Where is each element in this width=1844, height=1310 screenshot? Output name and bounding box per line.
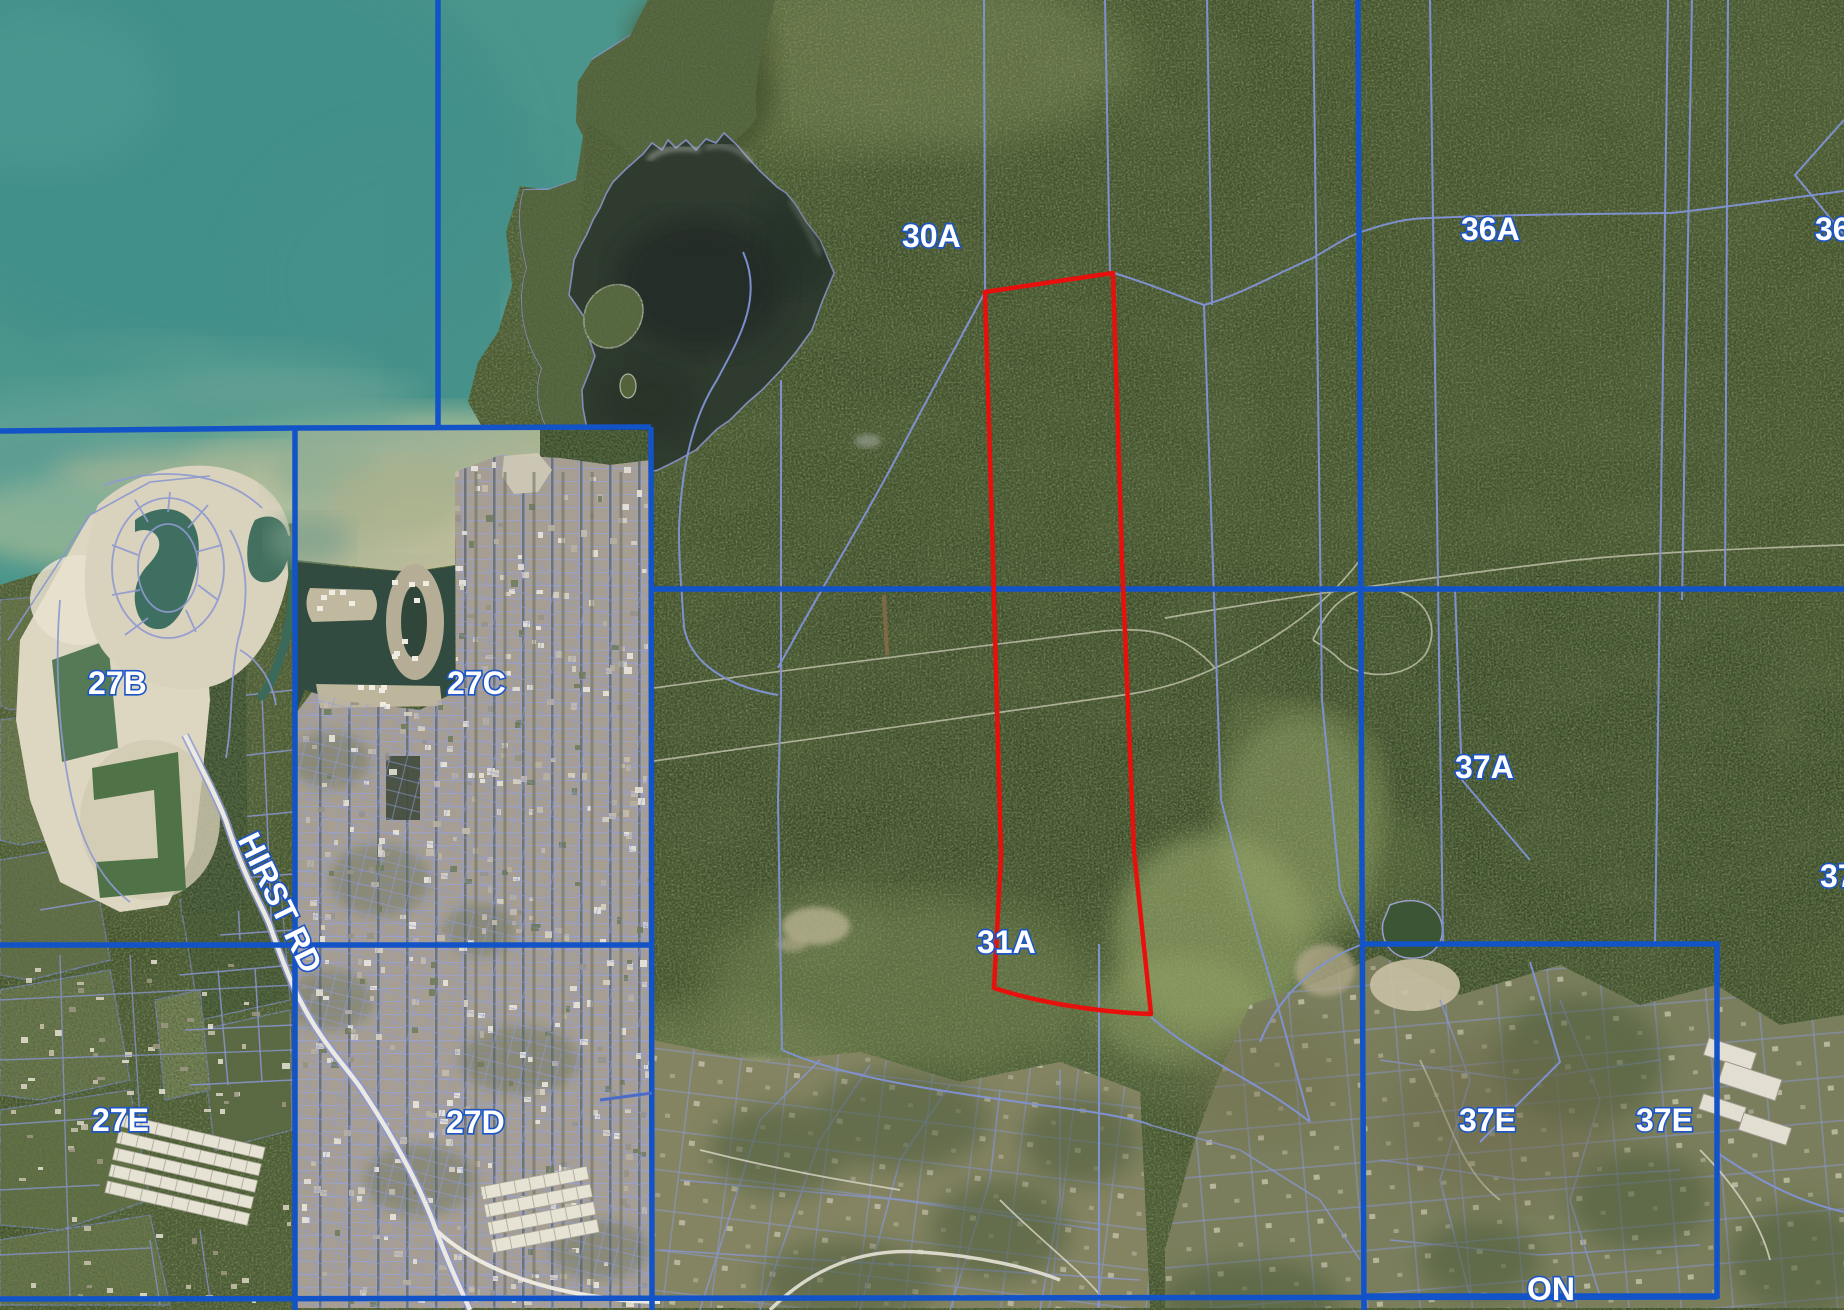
svg-text:36A: 36A bbox=[1461, 211, 1520, 247]
svg-text:27D: 27D bbox=[446, 1104, 505, 1140]
svg-text:ON: ON bbox=[1527, 1271, 1575, 1307]
svg-text:27E: 27E bbox=[92, 1102, 149, 1138]
svg-text:27C: 27C bbox=[447, 665, 506, 701]
svg-text:37E: 37E bbox=[1459, 1102, 1516, 1138]
svg-text:31A: 31A bbox=[977, 924, 1036, 960]
svg-text:27B: 27B bbox=[88, 665, 147, 701]
svg-text:37A: 37A bbox=[1455, 749, 1514, 785]
svg-text:30A: 30A bbox=[902, 218, 961, 254]
svg-text:37E: 37E bbox=[1636, 1102, 1693, 1138]
svg-text:36: 36 bbox=[1815, 211, 1844, 247]
svg-text:37: 37 bbox=[1820, 858, 1844, 894]
